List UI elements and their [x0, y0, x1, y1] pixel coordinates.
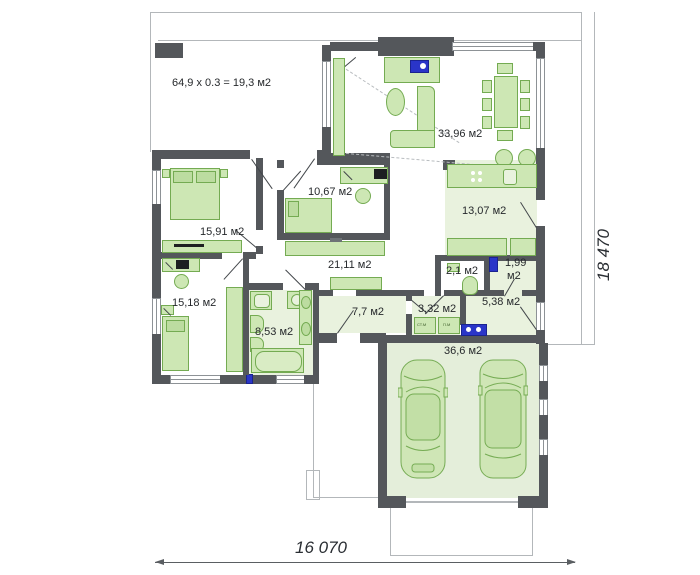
driveway-right — [532, 506, 533, 556]
chair-child — [355, 188, 371, 204]
dimension-arrow-left — [155, 559, 164, 565]
wall-bath-top-b — [305, 283, 319, 290]
bed-child-pillow — [288, 201, 299, 217]
site-outline-right-connector — [548, 344, 595, 345]
window-living-right — [536, 58, 545, 150]
desk-stool-left-bedroom — [174, 274, 189, 289]
monitor-left-bedroom — [176, 260, 189, 269]
label-pantry-2: м2 — [507, 270, 521, 282]
window-entry-right — [536, 302, 545, 332]
monitor-child — [374, 169, 387, 179]
tv-dot — [420, 63, 426, 69]
site-outline-left — [150, 12, 151, 152]
burner-4 — [478, 178, 482, 182]
bathtub-inner — [255, 351, 302, 372]
bath-sink-right-1 — [301, 296, 311, 309]
wall-garage-right-a — [539, 343, 548, 367]
living-wardrobe-strip — [333, 58, 345, 156]
nightstand-main-right — [220, 169, 228, 178]
label-wc: 2,1 м2 — [446, 265, 478, 277]
site-outline-inner-top — [158, 40, 582, 41]
burner-2 — [478, 171, 482, 175]
wall-garage-bottom-b — [518, 496, 548, 508]
garage-door-line — [406, 501, 518, 503]
fridge — [510, 238, 536, 256]
dining-chair-r1 — [520, 80, 530, 93]
label-bedroom-main: 15,91 м2 — [200, 226, 244, 238]
window-bedroom-main — [152, 170, 161, 206]
burner-1 — [471, 171, 475, 175]
bedroom-left-door-leaf — [224, 258, 243, 279]
bathroom-door-leaf — [285, 269, 306, 290]
fireplace-chase — [378, 37, 454, 56]
label-bedroom-left: 15,18 м2 — [172, 297, 216, 309]
label-bathroom: 8,53 м2 — [255, 326, 293, 338]
site-outline-right-1 — [581, 12, 582, 345]
label-hall: 7,7 м2 — [352, 306, 384, 318]
dryer-label: П.М — [443, 322, 450, 327]
wall-garage-left — [378, 343, 387, 506]
driveway-left — [390, 506, 391, 556]
tv-bedroom-main — [174, 244, 204, 247]
wall-corridor-south-b — [356, 290, 424, 296]
floor-plan: СТ.М П.М 64,9 x 0.3 = 19,3 м2 33,96 м2 1… — [0, 0, 700, 575]
bath-vanity-sink — [254, 294, 270, 308]
label-laundry: 3,32 м2 — [418, 303, 456, 315]
dining-chair-r3 — [520, 116, 530, 129]
site-outline-right-2 — [594, 12, 595, 345]
label-bedroom-small: 10,67 м2 — [308, 186, 352, 198]
bed-main-pillow-1 — [173, 171, 193, 183]
walkway-bottom-line — [313, 497, 387, 498]
window-living-top — [452, 42, 536, 51]
wall-pantry-bottom-b — [522, 290, 543, 296]
label-kitchen: 13,07 м2 — [462, 205, 506, 217]
dining-chair-top — [497, 63, 513, 74]
wall-right-b — [536, 148, 545, 200]
washer-label: СТ.М — [417, 322, 426, 327]
dimension-width: 16 070 — [295, 538, 347, 558]
boiler-dot-1 — [466, 327, 471, 332]
car-1 — [398, 358, 448, 480]
wall-bath-right — [313, 290, 319, 384]
wall-left-a — [152, 150, 161, 172]
corridor-wardrobe — [285, 241, 385, 256]
wall-bottom-a — [152, 375, 172, 384]
wardrobe-handle — [330, 238, 342, 242]
burner-3 — [471, 178, 475, 182]
dining-chair-r2 — [520, 98, 530, 111]
kitchen-counter-bottom — [447, 238, 507, 256]
dining-chair-l2 — [482, 98, 492, 111]
wall-hall-laundry-b — [406, 314, 412, 336]
corridor-cabinet — [330, 277, 382, 290]
water-heater — [489, 257, 498, 272]
wall-wc-left — [435, 255, 441, 296]
window-living-left — [322, 61, 331, 129]
nightstand-main-left — [162, 169, 170, 178]
wall-top-left — [152, 150, 250, 159]
window-bottom-bath — [276, 375, 306, 384]
dining-chair-l3 — [482, 116, 492, 129]
driveway-bottom — [390, 555, 533, 556]
label-garage: 36,6 м2 — [444, 345, 482, 357]
wall-bedroom-main-right-b — [256, 246, 263, 254]
wall-living-top — [330, 42, 380, 51]
kitchen-sink — [503, 169, 517, 185]
sofa-seat — [390, 130, 435, 148]
terrace-pier — [155, 43, 183, 58]
wardrobe-left-bedroom — [226, 287, 243, 372]
window-bedroom-left — [152, 298, 161, 336]
bed-main-pillow-2 — [196, 171, 216, 183]
car-2 — [478, 358, 528, 480]
towel-radiator — [246, 374, 253, 384]
bed-left-pillow — [166, 320, 185, 332]
boiler-dot-2 — [476, 327, 481, 332]
gate-post — [306, 470, 320, 500]
wall-hall-bottom-b — [360, 333, 386, 343]
label-corridor: 21,11 м2 — [328, 259, 371, 271]
dimension-depth: 18 470 — [594, 229, 614, 281]
toilet-wc — [462, 276, 478, 295]
dimension-line-bottom — [155, 562, 575, 563]
coffee-table — [386, 88, 405, 116]
wall-garage-bottom-a — [378, 496, 406, 508]
wall-laundry-entry — [460, 296, 466, 325]
site-outline-top — [150, 12, 582, 13]
boiler — [461, 324, 487, 336]
terrace-note: 64,9 x 0.3 = 19,3 м2 — [172, 77, 271, 89]
bath-sink-right-2 — [301, 322, 311, 336]
dining-chair-bottom — [497, 130, 513, 141]
label-pantry-1: 1,99 — [505, 257, 526, 269]
dining-chair-l1 — [482, 80, 492, 93]
dining-table — [494, 76, 518, 128]
wall-bath-top-a — [249, 283, 283, 290]
wall-garage-right-b — [539, 381, 548, 401]
wall-bath-left — [243, 252, 249, 375]
label-living: 33,96 м2 — [438, 128, 482, 140]
wall-child-left-a — [277, 160, 284, 168]
wall-garage-top — [386, 335, 545, 343]
label-entry: 5,38 м2 — [482, 296, 520, 308]
window-bottom-bedroom — [170, 375, 222, 384]
wall-garage-right-c — [539, 415, 548, 441]
kitchen-counter-top — [447, 164, 537, 188]
dimension-arrow-right — [567, 559, 576, 565]
